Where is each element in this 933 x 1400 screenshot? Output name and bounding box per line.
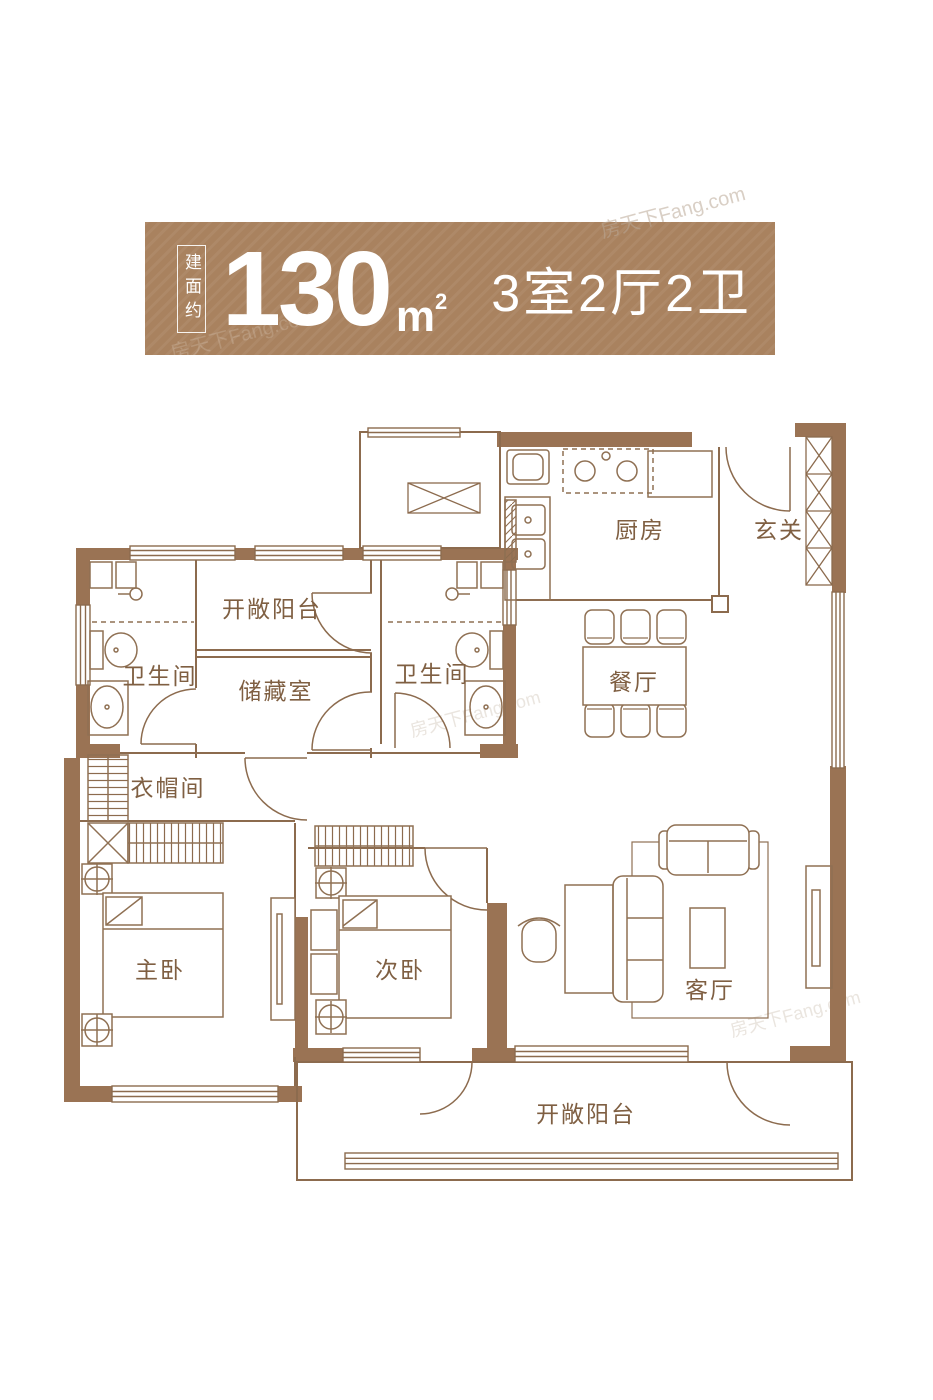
living-balcony-door [727, 1062, 790, 1125]
bath-left-door [141, 689, 196, 744]
storage-door [312, 692, 372, 750]
armchair [522, 920, 556, 962]
room-label-entry: 玄关 [754, 517, 804, 543]
kitchen-fixtures [505, 449, 712, 600]
toilet-tank [90, 631, 103, 669]
partition-lines [80, 432, 852, 1180]
bathroom-left [88, 562, 194, 735]
master-bed [103, 893, 223, 1017]
room-label-dining: 餐厅 [609, 669, 659, 695]
sofa-three-seat [613, 876, 663, 1002]
kitchen-cabinet [648, 451, 712, 497]
tv-cabinet [806, 866, 832, 988]
room-label-second-bedroom: 次卧 [375, 957, 425, 983]
basin [91, 686, 123, 728]
living-furniture [518, 825, 832, 1018]
service-shaft [408, 437, 832, 585]
room-label-balcony-top: 开敞阳台 [222, 596, 322, 622]
shelf-cabinet [271, 898, 295, 1020]
toilet-tank [490, 631, 503, 669]
kitchen-sink-top [513, 454, 543, 480]
bath-right-door [395, 693, 450, 748]
coffee-table [690, 908, 725, 968]
side-table [565, 885, 613, 993]
room-label-storage: 储藏室 [239, 678, 314, 704]
room-label-cloakroom: 衣帽间 [131, 775, 206, 801]
bedroom-balcony-door [420, 1062, 472, 1114]
stove [563, 449, 653, 493]
room-label-living: 客厅 [685, 977, 735, 1003]
room-label-master-bedroom: 主卧 [135, 957, 185, 983]
room-label-kitchen: 厨房 [615, 517, 665, 543]
basin [470, 686, 502, 728]
room-label-balcony-bottom: 开敞阳台 [536, 1101, 636, 1127]
entry-door [726, 447, 790, 511]
balcony-railing [345, 1153, 838, 1169]
floor-plan: 厨房 玄关 开敞阳台 卫生间 储藏室 卫生间 餐厅 衣帽间 主卧 次卧 客厅 开… [0, 0, 933, 1400]
bathroom-right [388, 562, 505, 735]
master-zone-door [245, 758, 307, 820]
room-label-bath-left: 卫生间 [123, 663, 198, 689]
tv [812, 890, 820, 966]
room-label-bath-right: 卫生间 [395, 661, 470, 687]
toilet-bowl [105, 633, 137, 667]
floorplan-page: 建面约 130 m 2 3室2厅2卫 房天下Fang.com 房天下Fang.c… [0, 0, 933, 1400]
